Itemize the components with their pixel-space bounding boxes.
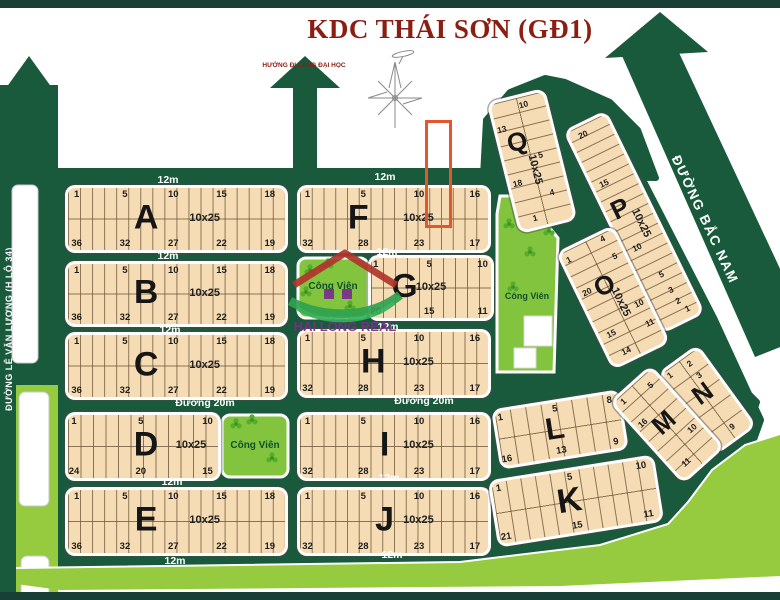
lot-number: 21 [500, 531, 512, 544]
lot-number: 32 [120, 238, 131, 249]
road-width-label: Đường 20m [160, 397, 250, 409]
block-letter-A: A [134, 198, 159, 237]
lot-size-label: 10x25 [189, 287, 220, 299]
block-J: J10x2515101632282317 [300, 490, 488, 553]
lot-number: 27 [168, 238, 179, 249]
lot-number: 16 [470, 333, 481, 344]
lot-number: 32 [302, 383, 313, 394]
block-I: I10x2515101632282317 [300, 415, 488, 478]
road-width-label: 12m [347, 549, 437, 561]
lot-number: 5 [361, 416, 366, 427]
lot-number: 10 [202, 416, 213, 427]
lot-size-label: 10x25 [403, 356, 434, 368]
lot-number: 22 [216, 385, 227, 396]
lot-number: 5 [138, 416, 143, 427]
lot-number: 13 [555, 444, 567, 457]
road-width-label: 12m [130, 555, 220, 567]
lot-number: 22 [216, 312, 227, 323]
lot-number: 10 [168, 491, 179, 502]
lot-number: 27 [168, 312, 179, 323]
road-name-le-van-luong: ĐƯỜNG LÊ VĂN LƯƠNG (H LỘ 34) [4, 194, 14, 464]
block-B: B10x25151015183632272219 [68, 264, 285, 324]
lot-size-label: 10x25 [176, 439, 207, 451]
lot-number: 5 [122, 336, 127, 347]
block-letter-D: D [134, 426, 159, 465]
road-width-label: 12m [340, 171, 430, 183]
lot-number: 32 [120, 312, 131, 323]
lot-number: 23 [414, 383, 425, 394]
road-width-label: Đường 20m [379, 395, 469, 407]
block-H: H10x2515101632282317 [300, 332, 488, 395]
lot-number: 27 [168, 385, 179, 396]
lot-number: 5 [122, 189, 127, 200]
road-width-label: 12m [125, 324, 215, 336]
block-letter-C: C [134, 345, 159, 384]
lot-number: 17 [470, 238, 481, 249]
lot-number: 10 [168, 265, 179, 276]
lot-number: 15 [424, 306, 435, 317]
lot-number: 32 [302, 466, 313, 477]
road-width-label: 12m [123, 174, 213, 186]
lot-number: 17 [470, 383, 481, 394]
block-letter-K: K [554, 480, 584, 522]
lot-number: 15 [216, 491, 227, 502]
lot-number: 10 [414, 416, 425, 427]
lot-number: 1 [74, 491, 79, 502]
lot-number: 10 [168, 189, 179, 200]
lot-number: 1 [74, 189, 79, 200]
lot-number: 10 [168, 336, 179, 347]
watermark-roof-icon [294, 253, 396, 285]
block-letter-B: B [134, 274, 158, 312]
watermark-window-icon [324, 289, 334, 299]
lot-number: 18 [265, 265, 276, 276]
lot-number: 15 [216, 336, 227, 347]
lot-number: 18 [265, 491, 276, 502]
lot-size-label: 10x25 [403, 439, 434, 451]
top-border-bar [0, 0, 780, 8]
lot-number: 19 [265, 541, 276, 552]
watermark-text: HAI LONG REAL [294, 319, 397, 334]
road-width-label: 12m [127, 476, 217, 488]
lot-grid [300, 188, 488, 250]
lot-number: 15 [216, 189, 227, 200]
lot-number: 36 [71, 238, 82, 249]
direction-note: HƯỚNG ĐI LÀNG ĐẠI HỌC [243, 62, 365, 69]
bottom-border-bar [0, 592, 780, 600]
lot-size-label: 10x25 [189, 359, 220, 371]
lot-number: 28 [358, 383, 369, 394]
lot-number: 22 [216, 238, 227, 249]
block-Q: Q10x25131051841 [490, 91, 574, 230]
lot-number: 5 [361, 491, 366, 502]
lot-number: 36 [71, 541, 82, 552]
lot-number: 11 [643, 508, 655, 520]
road-width-label: 12m [344, 472, 434, 484]
block-L: L15816139 [494, 393, 625, 467]
lot-number: 16 [470, 491, 481, 502]
block-E: E10x25151015183632272219 [68, 490, 285, 553]
lot-number: 18 [265, 189, 276, 200]
lot-number: 1 [74, 336, 79, 347]
lot-number: 27 [168, 541, 179, 552]
lot-number: 22 [216, 541, 227, 552]
lot-size-label: 10x25 [416, 281, 447, 293]
block-D: D10x251510242015 [68, 415, 218, 478]
block-letter-H: H [361, 343, 386, 382]
lot-number: 19 [265, 312, 276, 323]
lot-number: 1 [305, 491, 310, 502]
highlighted-lot-marker [425, 120, 452, 228]
block-letter-I: I [380, 426, 389, 465]
lot-number: 32 [120, 541, 131, 552]
lot-number: 36 [71, 385, 82, 396]
lot-number: 24 [69, 466, 80, 477]
lot-number: 19 [265, 238, 276, 249]
lot-number: 10 [477, 259, 488, 270]
lot-size-label: 10x25 [403, 514, 434, 526]
lot-size-label: 10x25 [189, 212, 220, 224]
block-K: K1510211511 [491, 458, 661, 545]
lot-number: 10 [414, 491, 425, 502]
lot-number: 1 [74, 265, 79, 276]
lot-number: 5 [122, 491, 127, 502]
lot-number: 32 [302, 541, 313, 552]
road-width-label: 12m [123, 250, 213, 262]
block-C: C10x25151015183632272219 [68, 335, 285, 397]
lot-number: 18 [265, 336, 276, 347]
page-title: KDC THÁI SƠN (GĐ1) [230, 14, 670, 45]
watermark-window-icon [342, 289, 352, 299]
lot-number: 10 [414, 189, 425, 200]
lot-number: 5 [122, 265, 127, 276]
lot-number: 15 [216, 265, 227, 276]
lot-number: 10 [635, 460, 647, 473]
lot-number: 16 [470, 189, 481, 200]
block-letter-E: E [135, 501, 158, 540]
lot-grid [300, 415, 488, 478]
block-F: F10x2515101632282317 [300, 188, 488, 250]
lot-number: 32 [120, 385, 131, 396]
block-A: A10x25151015183632272219 [68, 188, 285, 250]
subdivision-map: KDC THÁI SƠN (GĐ1) HƯỚNG ĐI LÀNG ĐẠI HỌC… [0, 0, 780, 600]
lot-number: 5 [427, 259, 432, 270]
lot-number: 36 [71, 312, 82, 323]
lot-number: 16 [501, 453, 513, 466]
lot-number: 1 [305, 416, 310, 427]
lot-number: 1 [71, 416, 76, 427]
lot-number: 16 [470, 416, 481, 427]
lot-number: 15 [571, 519, 583, 532]
lot-number: 19 [265, 385, 276, 396]
lot-grid [300, 332, 488, 395]
lot-number: 5 [361, 189, 366, 200]
block-letter-F: F [348, 198, 369, 237]
lot-number: 1 [305, 189, 310, 200]
lot-number: 17 [470, 466, 481, 477]
lot-number: 10 [414, 333, 425, 344]
watermark-logo: HAI LONG REAL [286, 243, 404, 335]
lot-number: 11 [478, 306, 488, 317]
block-letter-J: J [375, 501, 394, 540]
lot-size-label: 10x25 [189, 514, 220, 526]
lot-number: 17 [470, 541, 481, 552]
